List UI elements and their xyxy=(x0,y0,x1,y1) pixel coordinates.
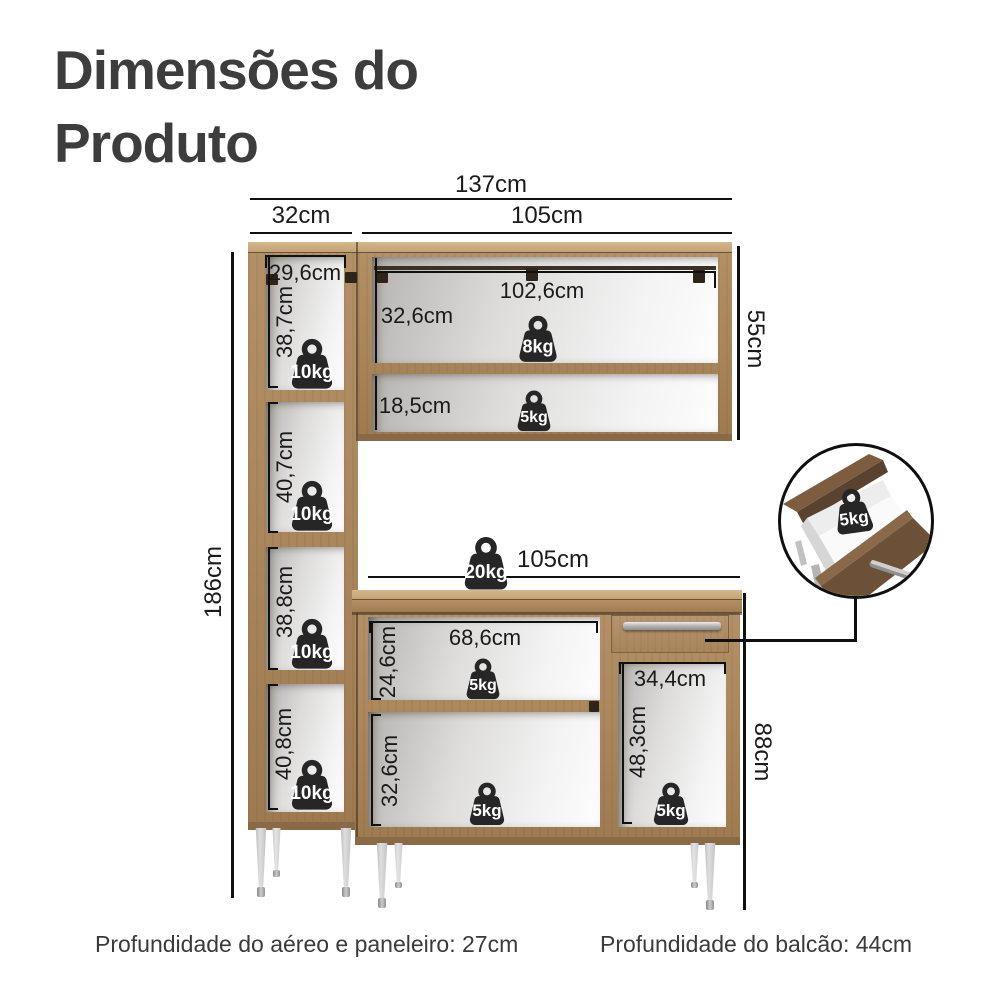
tall-cabinet-top-face xyxy=(248,242,358,253)
weight-capacity-label: 5kg xyxy=(656,801,685,821)
weight-capacity-label: 20kg xyxy=(464,562,507,584)
dim-overall-height-label: 186cm xyxy=(200,546,228,618)
upper-cabinet-bottom-edge xyxy=(358,434,732,441)
dim-upper-section2-line xyxy=(375,376,377,430)
dim-counter-section1-label: 24,6cm xyxy=(375,626,401,698)
dim-counter-inner-width-line xyxy=(370,621,598,623)
dim-tall-section2-line xyxy=(268,402,270,533)
weight-capacity-label: 10kg xyxy=(290,783,333,805)
dim-counter-section2-label: 32,6cm xyxy=(377,735,403,807)
weight-capacity-badge: 5kg xyxy=(460,657,506,701)
dim-overall-width-label: 137cm xyxy=(455,171,527,199)
dim-upper-inner-width-line xyxy=(376,271,716,273)
upper-cabinet-top-face xyxy=(358,242,732,253)
dim-upper-width-label: 105cm xyxy=(511,202,583,230)
weight-capacity-badge: 5kg xyxy=(647,781,695,827)
drawer-handle xyxy=(623,622,721,630)
dim-tall-width-line xyxy=(250,232,352,234)
inset-connector-vertical xyxy=(854,598,857,641)
dim-upper-inner-width-label: 102,6cm xyxy=(500,278,584,304)
weight-capacity-badge: 5kg xyxy=(825,484,881,538)
counter-leg xyxy=(390,843,407,889)
counter-leg xyxy=(699,843,721,911)
dim-upper-section2-label: 18,5cm xyxy=(379,393,451,419)
hanging-rail xyxy=(374,266,716,270)
counter-top-face xyxy=(352,590,742,600)
dim-tall-inner-width-line xyxy=(266,255,346,257)
weight-capacity-badge: 20kg xyxy=(456,535,516,592)
dim-overall-height-line xyxy=(231,252,234,898)
dim-counter-height-label: 88cm xyxy=(748,723,776,782)
weight-capacity-badge: 8kg xyxy=(512,314,564,364)
weight-capacity-label: 5kg xyxy=(838,507,870,531)
dim-upper-section1-line xyxy=(375,258,377,363)
page-title-line2: Produto xyxy=(54,112,258,174)
dim-tall-section4-line xyxy=(268,684,270,810)
product-dimensions-diagram: Dimensões doProduto xyxy=(0,0,1000,1000)
depth-note-counter: Profundidade do balcão: 44cm xyxy=(600,931,912,958)
dim-upper-height-line xyxy=(737,246,740,440)
inset-connector-horizontal xyxy=(705,639,857,642)
weight-capacity-badge: 10kg xyxy=(284,479,340,533)
drawer-front xyxy=(611,615,729,653)
shelf-clip xyxy=(589,701,599,712)
weight-capacity-badge: 5kg xyxy=(511,389,557,433)
dim-counter-width-line xyxy=(368,576,740,578)
weight-capacity-label: 10kg xyxy=(290,362,333,384)
dim-counter-inner-width-label: 68,6cm xyxy=(449,625,521,651)
weight-capacity-label: 8kg xyxy=(522,337,553,358)
dim-cubby-height-label: 48,3cm xyxy=(625,706,651,778)
dim-tall-width-label: 32cm xyxy=(272,202,331,230)
weight-capacity-badge: 5kg xyxy=(463,781,511,827)
dim-tall-section3-line xyxy=(268,547,270,670)
depth-note-upper: Profundidade do aéreo e paneleiro: 27cm xyxy=(95,931,518,958)
weight-capacity-badge: 10kg xyxy=(284,617,340,671)
weight-capacity-label: 10kg xyxy=(290,504,333,526)
dim-counter-height-line xyxy=(743,593,746,910)
weight-capacity-label: 5kg xyxy=(472,801,501,821)
weight-capacity-label: 5kg xyxy=(520,409,548,427)
cabinet-leg xyxy=(268,828,285,878)
dim-cubby-width-line xyxy=(620,662,726,664)
cabinet-leg xyxy=(335,828,357,898)
weight-capacity-badge: 10kg xyxy=(284,758,340,812)
page-title: Dimensões doProduto xyxy=(54,34,418,179)
dim-upper-width-line xyxy=(362,232,732,234)
dim-counter-section2-line xyxy=(371,714,373,826)
dim-counter-width-label: 105cm xyxy=(517,546,589,574)
wall-bracket-icon xyxy=(345,272,357,283)
dim-upper-section1-label: 32,6cm xyxy=(381,303,453,329)
dim-cubby-height-line xyxy=(622,663,624,824)
page-title-line1: Dimensões do xyxy=(54,39,418,101)
weight-capacity-label: 5kg xyxy=(469,677,497,695)
dim-upper-height-label: 55cm xyxy=(741,310,769,369)
dim-cubby-width-label: 34,4cm xyxy=(634,666,706,692)
dim-counter-section1-line xyxy=(371,622,373,700)
counter-tall-seam xyxy=(356,613,358,837)
dim-tall-inner-width-label: 29,6cm xyxy=(269,260,341,286)
counter-bottom-edge xyxy=(355,837,740,845)
weight-capacity-label: 10kg xyxy=(290,642,333,664)
weight-capacity-badge: 10kg xyxy=(284,337,340,391)
